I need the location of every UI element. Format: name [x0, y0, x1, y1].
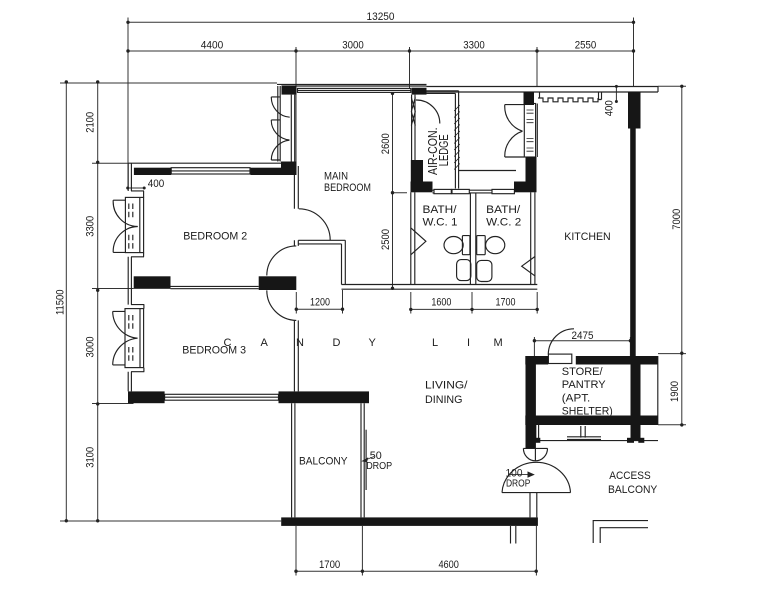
svg-text:LIVING/: LIVING/: [425, 379, 469, 391]
svg-text:KITCHEN: KITCHEN: [564, 231, 610, 243]
svg-text:LEDGE: LEDGE: [437, 134, 451, 166]
svg-text:BEDROOM: BEDROOM: [324, 182, 371, 194]
svg-text:A: A: [261, 337, 269, 349]
svg-text:MAIN: MAIN: [324, 170, 348, 182]
svg-text:2100: 2100: [84, 112, 96, 133]
svg-text:STORE/: STORE/: [562, 366, 604, 378]
svg-text:BALCONY: BALCONY: [608, 484, 658, 496]
svg-text:400: 400: [148, 178, 165, 190]
svg-text:1700: 1700: [496, 297, 516, 309]
svg-text:W.C. 2: W.C. 2: [486, 217, 521, 229]
svg-text:3300: 3300: [463, 40, 485, 52]
svg-text:2500: 2500: [380, 229, 392, 250]
svg-text:BATH/: BATH/: [486, 204, 521, 216]
svg-text:BEDROOM 2: BEDROOM 2: [183, 231, 247, 243]
svg-text:1700: 1700: [319, 559, 340, 571]
svg-text:11500: 11500: [55, 290, 67, 316]
svg-text:L: L: [432, 337, 438, 349]
svg-text:2475: 2475: [572, 330, 594, 342]
svg-text:1600: 1600: [431, 297, 451, 309]
svg-text:400: 400: [603, 100, 615, 116]
svg-text:1200: 1200: [310, 297, 330, 309]
svg-text:(APT.: (APT.: [562, 393, 591, 405]
svg-text:DINING: DINING: [425, 394, 463, 406]
svg-text:BALCONY: BALCONY: [299, 456, 348, 468]
svg-text:3100: 3100: [84, 447, 96, 468]
svg-text:4400: 4400: [201, 40, 224, 52]
svg-text:2600: 2600: [380, 133, 392, 154]
svg-text:SHELTER): SHELTER): [562, 406, 613, 418]
svg-text:1900: 1900: [669, 381, 681, 402]
svg-text:I: I: [467, 337, 470, 349]
svg-text:PANTRY: PANTRY: [562, 379, 606, 391]
svg-text:DROP: DROP: [506, 478, 531, 490]
svg-text:13250: 13250: [367, 11, 395, 23]
svg-text:3000: 3000: [342, 40, 364, 52]
svg-text:D: D: [333, 337, 341, 349]
svg-text:DROP: DROP: [366, 460, 392, 472]
svg-text:BATH/: BATH/: [423, 204, 458, 216]
svg-text:2550: 2550: [575, 40, 597, 52]
svg-text:Y: Y: [369, 337, 377, 349]
svg-text:4600: 4600: [438, 559, 459, 571]
svg-text:M: M: [494, 337, 503, 349]
svg-text:W.C. 1: W.C. 1: [423, 217, 458, 229]
svg-text:3000: 3000: [84, 337, 96, 358]
svg-text:ACCESS: ACCESS: [609, 470, 650, 482]
svg-text:BEDROOM 3: BEDROOM 3: [182, 345, 246, 357]
svg-text:3300: 3300: [84, 216, 96, 237]
svg-text:N: N: [296, 337, 304, 349]
svg-text:7000: 7000: [671, 209, 683, 230]
